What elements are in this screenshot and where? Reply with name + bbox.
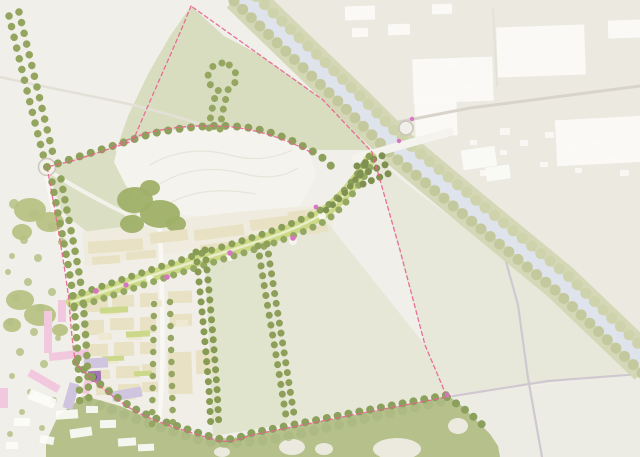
scattered-tree xyxy=(34,254,42,262)
scattered-tree xyxy=(48,288,56,296)
accent-magenta-node xyxy=(397,139,401,143)
northwest-woods xyxy=(120,215,144,233)
accent-magenta-node xyxy=(164,274,170,280)
scattered-tree xyxy=(16,348,24,356)
building-existing-pink xyxy=(44,311,52,353)
scattered-tree xyxy=(36,304,44,312)
building-existing-white xyxy=(118,437,137,446)
scattered-tree xyxy=(97,447,103,453)
building-new-light xyxy=(176,320,188,327)
context-building-small xyxy=(462,84,470,90)
scattered-tree xyxy=(12,294,20,302)
scattered-tree xyxy=(7,431,13,437)
context-building xyxy=(608,19,640,38)
woodland-clearing xyxy=(279,439,305,455)
building-new-light xyxy=(98,333,112,340)
woodland-clearing xyxy=(315,443,333,455)
context-building-small xyxy=(575,168,582,173)
building-existing-pink xyxy=(0,388,8,408)
context-building-small xyxy=(448,60,458,67)
scattered-tree xyxy=(83,441,89,447)
building-existing-white xyxy=(100,420,116,429)
scattered-tree xyxy=(20,236,28,244)
context-building xyxy=(388,24,410,36)
scattered-tree xyxy=(29,209,39,219)
building-existing-white xyxy=(56,409,79,420)
context-building xyxy=(496,24,586,77)
scattered-tree xyxy=(55,335,61,341)
scattered-tree xyxy=(57,441,63,447)
accent-magenta-node xyxy=(93,288,99,294)
courtyard-green xyxy=(134,371,152,377)
context-building xyxy=(432,4,452,15)
context-building-small xyxy=(610,155,618,161)
context-building xyxy=(345,5,375,20)
building-new xyxy=(110,318,134,331)
accent-magenta-node xyxy=(314,205,319,210)
scattered-tree xyxy=(115,449,121,455)
courtyard-green xyxy=(126,330,150,337)
woodland-clearing xyxy=(214,447,230,457)
woodland-clearing xyxy=(448,418,468,434)
context-building-small xyxy=(590,138,600,145)
context-building-small xyxy=(620,170,629,176)
scattered-tree xyxy=(5,269,11,275)
accent-magenta-node xyxy=(227,250,233,256)
building-existing-pink xyxy=(58,300,66,322)
building-existing-white xyxy=(6,442,18,449)
scattered-tree xyxy=(39,425,45,431)
scattered-tree xyxy=(24,278,32,286)
building-existing-white xyxy=(14,418,30,426)
context-building-small xyxy=(500,150,507,155)
accent-magenta-node xyxy=(445,393,450,398)
accent-magenta-node xyxy=(410,117,414,121)
scattered-tree xyxy=(9,199,19,209)
scattered-tree xyxy=(6,318,14,326)
context-building-small xyxy=(470,140,477,145)
context-building-small xyxy=(565,148,573,154)
context-building-small xyxy=(545,132,554,138)
scattered-tree xyxy=(9,253,15,259)
west-grove xyxy=(52,324,68,336)
northwest-woods xyxy=(140,180,160,196)
scattered-tree xyxy=(30,328,38,336)
context-building-small xyxy=(500,128,510,135)
masterplan-viewer xyxy=(0,0,640,457)
scattered-tree xyxy=(9,373,15,379)
masterplan-map[interactable] xyxy=(0,0,640,457)
building-new xyxy=(114,342,134,357)
accent-magenta-node xyxy=(123,282,128,287)
building-existing-white xyxy=(138,444,154,452)
context-building xyxy=(352,28,368,38)
building-existing-white xyxy=(86,406,98,413)
canal-roundabout xyxy=(399,121,413,135)
scattered-tree xyxy=(19,409,25,415)
scattered-tree xyxy=(40,360,48,368)
accent-magenta-node xyxy=(290,235,296,241)
context-building-small xyxy=(540,162,548,167)
scattered-tree xyxy=(48,222,56,230)
context-building-small xyxy=(520,140,528,146)
